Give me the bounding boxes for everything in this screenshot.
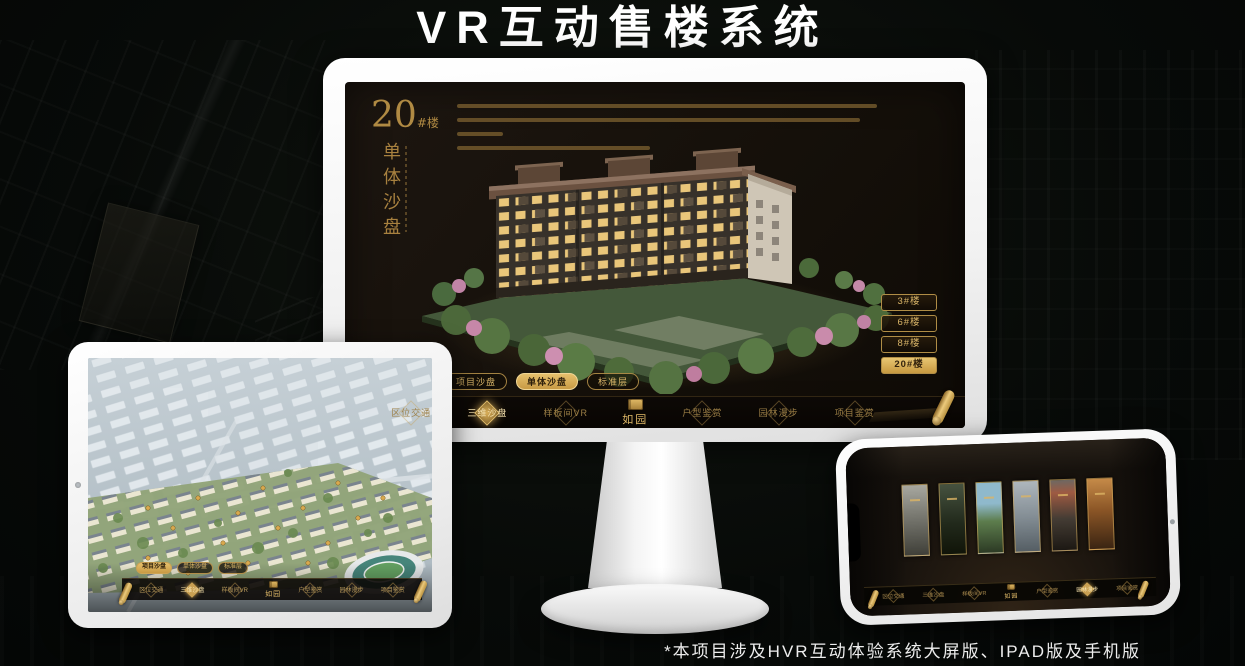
nav-label: 区位交通 — [882, 594, 904, 601]
nav-label: 项目鉴赏 — [1116, 585, 1138, 592]
text-line — [457, 104, 877, 108]
monitor-stand — [588, 442, 722, 588]
sandbox-tabs: 项目沙盘 单体沙盘 标准层 — [445, 373, 639, 390]
scene-panel-5[interactable] — [1049, 479, 1077, 552]
nav-label: 区位交通 — [391, 408, 431, 418]
building-3d-render[interactable] — [403, 144, 905, 394]
camera-icon — [75, 482, 81, 488]
nav-label: 样板间VR — [222, 588, 248, 594]
nav-item-floorplan[interactable]: 户型鉴赏 — [1036, 586, 1058, 595]
nav-item-3d-sandbox[interactable]: 三维沙盘 — [180, 585, 204, 594]
nav-label: 项目鉴赏 — [835, 408, 875, 418]
brand-name: 如园 — [1004, 591, 1018, 600]
building-button-8[interactable]: 8#楼 — [881, 336, 937, 353]
seal-icon — [1007, 584, 1015, 590]
block-number-suffix: #楼 — [417, 116, 439, 130]
scene-panel-4[interactable] — [1012, 480, 1040, 553]
tablet-sandbox-tabs: 项目沙盘 单体沙盘 标准层 — [136, 562, 248, 574]
scene-panel-2[interactable] — [938, 483, 966, 556]
nav-label: 样板间VR — [962, 591, 986, 598]
tab-single-sandbox[interactable]: 单体沙盘 — [516, 373, 578, 390]
tab-single-sandbox[interactable]: 单体沙盘 — [177, 562, 213, 574]
nav-item-garden-walk[interactable]: 园林漫步 — [757, 402, 801, 423]
phone-device: 区位交通 三维沙盘 样板间VR 如园 户型鉴赏 园林漫步 项目鉴赏 — [835, 428, 1181, 626]
camera-icon — [1170, 519, 1175, 524]
nav-item-model-room-vr[interactable]: 样板间VR — [542, 402, 591, 423]
tablet-nav-bar: 区位交通 三维沙盘 样板间VR 如园 户型鉴赏 园林漫步 项目鉴赏 — [122, 578, 422, 600]
nav-item-project-view[interactable]: 项目鉴赏 — [1116, 583, 1138, 592]
nav-label: 户型鉴赏 — [682, 408, 722, 418]
brand-name: 如园 — [622, 411, 648, 427]
block-subtitle: 单体沙盘 — [377, 142, 403, 252]
tab-project-sandbox[interactable]: 项目沙盘 — [445, 373, 507, 390]
nav-label: 园林漫步 — [1076, 587, 1098, 594]
nav-label: 样板间VR — [544, 408, 589, 418]
nav-item-location-traffic[interactable]: 区位交通 — [139, 585, 163, 594]
nav-item-garden-walk[interactable]: 园林漫步 — [1076, 585, 1098, 594]
nav-label: 区位交通 — [139, 588, 163, 594]
nav-label: 三维沙盘 — [467, 408, 507, 418]
nav-label: 园林漫步 — [759, 408, 799, 418]
text-line — [457, 118, 860, 122]
building-selector: 3#楼 6#楼 8#楼 20#楼 — [881, 294, 937, 374]
tab-standard-floor[interactable]: 标准层 — [587, 373, 639, 390]
block-number: 20 — [371, 95, 417, 136]
nav-item-project-view[interactable]: 项目鉴赏 — [381, 585, 405, 594]
text-line — [457, 132, 503, 136]
brand-logo: 如园 — [622, 399, 648, 427]
nav-label: 项目鉴赏 — [381, 588, 405, 594]
tab-project-sandbox[interactable]: 项目沙盘 — [136, 562, 172, 574]
seal-icon — [269, 581, 278, 588]
nav-label: 园林漫步 — [340, 588, 364, 594]
nav-item-location-traffic[interactable]: 区位交通 — [389, 402, 433, 423]
brand-logo: 如园 — [265, 581, 281, 599]
seal-icon — [628, 399, 643, 410]
nav-item-location-traffic[interactable]: 区位交通 — [882, 592, 904, 601]
scene-panel-3[interactable] — [975, 481, 1003, 554]
nav-item-project-view[interactable]: 项目鉴赏 — [833, 402, 877, 423]
phone-screen: 区位交通 三维沙盘 样板间VR 如园 户型鉴赏 园林漫步 项目鉴赏 — [845, 437, 1171, 616]
nav-item-garden-walk[interactable]: 园林漫步 — [340, 585, 364, 594]
nav-label: 三维沙盘 — [180, 588, 204, 594]
footnote-caption: *本项目涉及HVR互动体验系统大屏版、IPAD版及手机版 — [664, 637, 1141, 662]
nav-item-3d-sandbox[interactable]: 三维沙盘 — [922, 590, 944, 599]
nav-item-model-room-vr[interactable]: 样板间VR — [962, 589, 986, 598]
building-button-3[interactable]: 3#楼 — [881, 294, 937, 311]
brand-name: 如园 — [265, 589, 281, 599]
brand-logo: 如园 — [1004, 584, 1019, 600]
tablet-device: 项目沙盘 单体沙盘 标准层 区位交通 三维沙盘 样板间VR 如园 户型鉴赏 园林… — [68, 342, 452, 628]
scene-panels — [846, 475, 1168, 558]
monitor-base — [541, 584, 769, 634]
nav-label: 户型鉴赏 — [298, 588, 322, 594]
nav-label: 户型鉴赏 — [1036, 588, 1058, 595]
nav-item-model-room-vr[interactable]: 样板间VR — [222, 585, 248, 594]
scene-panel-6[interactable] — [1086, 477, 1114, 550]
nav-item-3d-sandbox[interactable]: 三维沙盘 — [465, 402, 509, 423]
page-title: VR互动售楼系统 — [0, 0, 1245, 56]
nav-item-floorplan[interactable]: 户型鉴赏 — [298, 585, 322, 594]
nav-item-floorplan[interactable]: 户型鉴赏 — [680, 402, 724, 423]
building-button-6[interactable]: 6#楼 — [881, 315, 937, 332]
tab-standard-floor[interactable]: 标准层 — [218, 562, 248, 574]
nav-label: 三维沙盘 — [922, 592, 944, 599]
promo-canvas: VR互动售楼系统 20#楼 单体沙盘 — [0, 0, 1245, 666]
background-texture-city — [975, 50, 1245, 460]
tablet-screen: 项目沙盘 单体沙盘 标准层 区位交通 三维沙盘 样板间VR 如园 户型鉴赏 园林… — [88, 358, 432, 612]
building-button-20[interactable]: 20#楼 — [881, 357, 937, 374]
scene-panel-1[interactable] — [901, 484, 929, 557]
